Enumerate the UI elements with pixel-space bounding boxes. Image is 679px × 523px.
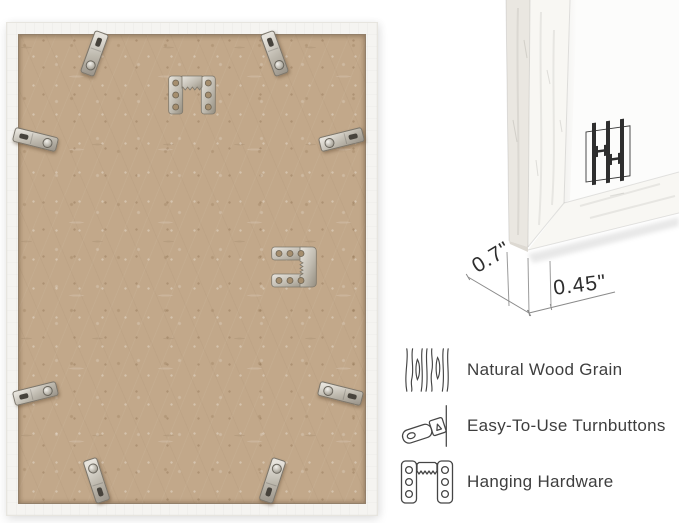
feature-label: Easy-To-Use Turnbuttons — [467, 416, 666, 436]
turnbutton-slot — [265, 487, 273, 497]
turnbutton-icon — [400, 403, 454, 449]
product-image-canvas: 0.7" 0.45" Natural Wood Grain — [0, 0, 679, 523]
sawtooth-hanger-icon — [168, 75, 216, 115]
turnbutton-screw — [322, 385, 334, 397]
turnbutton-slot — [348, 133, 358, 140]
feature-hanging-hardware: Hanging Hardware — [400, 458, 676, 506]
turnbutton-screw — [84, 59, 97, 72]
turnbutton-slot — [95, 37, 103, 47]
wood-grain-icon — [400, 347, 454, 393]
turnbutton-slot — [19, 133, 29, 140]
turnbutton-screw — [41, 137, 53, 149]
feature-wood-grain: Natural Wood Grain — [400, 346, 676, 394]
turnbutton-slot — [96, 487, 104, 497]
feature-list: Natural Wood Grain Easy-To-Use Turnbutto… — [400, 346, 676, 514]
sawtooth-hanger-icon — [271, 245, 317, 289]
feature-label: Hanging Hardware — [467, 472, 614, 492]
turnbutton-screw — [42, 385, 54, 397]
hanging-hardware-icon — [400, 458, 454, 506]
turnbutton-screw — [273, 59, 286, 72]
frame-back-photo — [6, 22, 378, 516]
turnbutton-screw — [271, 462, 284, 475]
brand-logo-icon — [586, 118, 630, 186]
turnbutton-screw — [87, 462, 100, 475]
turnbutton-slot — [347, 393, 357, 400]
turnbutton-slot — [267, 37, 275, 47]
turnbutton-slot — [19, 393, 29, 400]
feature-label: Natural Wood Grain — [467, 360, 622, 380]
feature-turnbuttons: Easy-To-Use Turnbuttons — [400, 402, 676, 450]
turnbutton-screw — [323, 137, 335, 149]
